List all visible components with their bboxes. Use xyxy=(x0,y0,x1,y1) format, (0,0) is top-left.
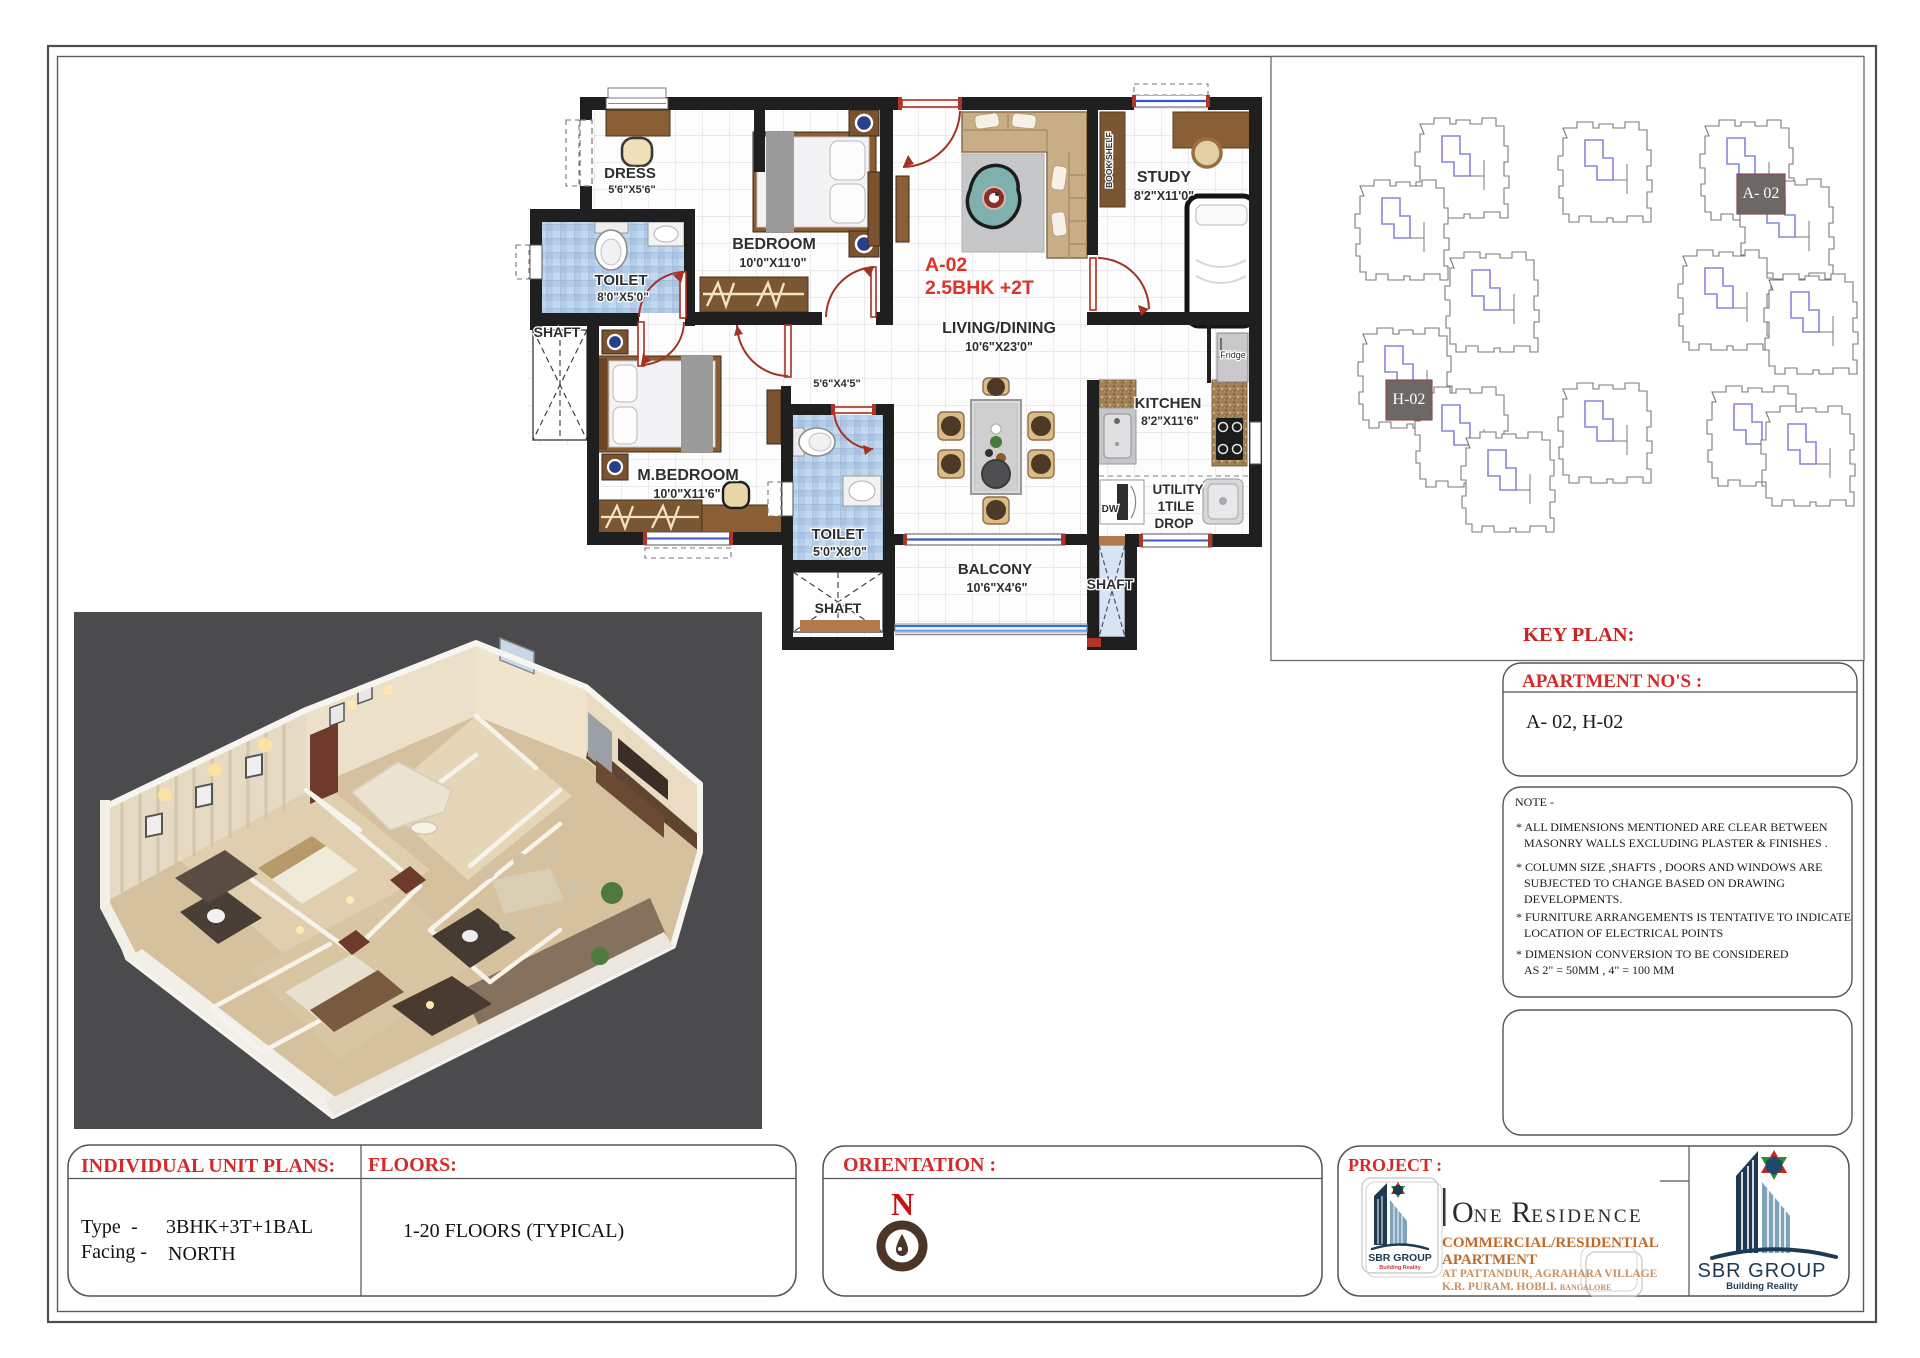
svg-text:* FURNITURE ARRANGEMENTS IS TE: * FURNITURE ARRANGEMENTS IS TENTATIVE TO… xyxy=(1516,910,1851,924)
svg-text:INDIVIDUAL UNIT PLANS:: INDIVIDUAL UNIT PLANS: xyxy=(81,1155,335,1177)
svg-text:UTILITY: UTILITY xyxy=(1153,482,1204,497)
svg-text:DEVELOPMENTS.: DEVELOPMENTS. xyxy=(1524,892,1622,906)
svg-text:NOTE -: NOTE - xyxy=(1515,795,1554,809)
svg-text:APARTMENT: APARTMENT xyxy=(1442,1252,1537,1268)
svg-text:N: N xyxy=(891,1186,914,1222)
svg-text:MASONRY WALLS EXCLUDING PLASTE: MASONRY WALLS EXCLUDING PLASTER & FINISH… xyxy=(1524,836,1828,850)
svg-text:2.5BHK +2T: 2.5BHK +2T xyxy=(925,277,1034,299)
svg-text:8'2"X11'6": 8'2"X11'6" xyxy=(1141,414,1199,428)
svg-text:SHAFT: SHAFT xyxy=(1087,576,1134,592)
svg-text:A- 02, H-02: A- 02, H-02 xyxy=(1526,711,1623,733)
svg-text:SHAFT: SHAFT xyxy=(534,324,581,340)
svg-text:TOILET: TOILET xyxy=(594,272,647,289)
svg-text:LIVING/DINING: LIVING/DINING xyxy=(942,320,1056,337)
svg-text:DROP: DROP xyxy=(1154,516,1193,531)
svg-text:1TILE: 1TILE xyxy=(1158,499,1195,514)
svg-text:Type: Type xyxy=(81,1216,121,1238)
svg-text:A-02: A-02 xyxy=(925,254,967,276)
svg-text:SBR GROUP: SBR GROUP xyxy=(1697,1260,1826,1282)
svg-text:PROJECT :: PROJECT : xyxy=(1348,1155,1442,1175)
svg-text:BEDROOM: BEDROOM xyxy=(732,236,816,253)
svg-text:8'0"X5'0": 8'0"X5'0" xyxy=(597,290,649,304)
svg-text:DW: DW xyxy=(1102,504,1119,515)
svg-text:LOCATION OF ELECTRICAL POINTS: LOCATION OF ELECTRICAL POINTS xyxy=(1524,926,1723,940)
svg-text:FLOORS:: FLOORS: xyxy=(368,1154,457,1176)
svg-text:5'6"X4'5": 5'6"X4'5" xyxy=(813,378,860,390)
svg-text:* DIMENSION CONVERSION TO BE C: * DIMENSION CONVERSION TO BE CONSIDERED xyxy=(1516,947,1789,961)
svg-text:3BHK+3T+1BAL: 3BHK+3T+1BAL xyxy=(166,1216,313,1238)
svg-text:Facing -: Facing - xyxy=(81,1241,147,1263)
svg-text:AT PATTANDUR, AGRAHARA VILLAGE: AT PATTANDUR, AGRAHARA VILLAGE xyxy=(1442,1268,1658,1280)
svg-text:NORTH: NORTH xyxy=(168,1243,236,1265)
svg-text:-: - xyxy=(131,1216,138,1238)
svg-text:H-02: H-02 xyxy=(1393,391,1426,408)
svg-text:KITCHEN: KITCHEN xyxy=(1135,395,1202,412)
svg-text:Building Reality: Building Reality xyxy=(1726,1281,1799,1292)
svg-text:* ALL DIMENSIONS MENTIONED ARE: * ALL DIMENSIONS MENTIONED ARE CLEAR BET… xyxy=(1516,820,1828,834)
svg-text:* COLUMN SIZE ,SHAFTS , DOORS: * COLUMN SIZE ,SHAFTS , DOORS AND WINDOW… xyxy=(1516,860,1822,874)
svg-text:10'6"X4'6": 10'6"X4'6" xyxy=(967,581,1028,595)
svg-text:1-20 FLOORS (TYPICAL): 1-20 FLOORS (TYPICAL) xyxy=(403,1220,624,1242)
svg-text:COMMERCIAL/RESIDENTIAL: COMMERCIAL/RESIDENTIAL xyxy=(1442,1235,1659,1251)
svg-text:KEY PLAN:: KEY PLAN: xyxy=(1523,624,1634,646)
svg-text:AS 2" = 50MM , 4" = 100 MM: AS 2" = 50MM , 4" = 100 MM xyxy=(1524,963,1675,977)
svg-text:APARTMENT NO'S :: APARTMENT NO'S : xyxy=(1522,671,1702,692)
svg-text:8'2"X11'0": 8'2"X11'0" xyxy=(1134,189,1194,203)
svg-text:5'0"X8'0": 5'0"X8'0" xyxy=(813,545,867,559)
svg-text:Building Reality: Building Reality xyxy=(1379,1265,1422,1271)
svg-text:ORIENTATION :: ORIENTATION : xyxy=(843,1154,996,1176)
svg-text:SBR GROUP: SBR GROUP xyxy=(1368,1252,1432,1264)
svg-text:10'0"X11'6": 10'0"X11'6" xyxy=(653,487,720,501)
svg-text:A- 02: A- 02 xyxy=(1743,185,1780,202)
svg-text:5'6"X5'6": 5'6"X5'6" xyxy=(608,184,655,196)
svg-text:SUBJECTED TO CHANGE BASED ON: SUBJECTED TO CHANGE BASED ON DRAWING xyxy=(1524,876,1785,890)
svg-text:M.BEDROOM: M.BEDROOM xyxy=(637,467,738,484)
svg-text:TOILET: TOILET xyxy=(811,526,864,543)
svg-text:K.R. PURAM. HOBLI. BANGALORE: K.R. PURAM. HOBLI. BANGALORE xyxy=(1442,1281,1611,1293)
svg-text:10'6"X23'0": 10'6"X23'0" xyxy=(965,340,1033,354)
svg-text:SHAFT: SHAFT xyxy=(815,600,862,616)
svg-text:STUDY: STUDY xyxy=(1137,169,1192,186)
svg-text:BALCONY: BALCONY xyxy=(958,561,1032,578)
svg-text:Fridge: Fridge xyxy=(1220,350,1246,360)
svg-text:BOOK SHELF: BOOK SHELF xyxy=(1104,132,1114,188)
svg-text:DRESS: DRESS xyxy=(604,165,656,182)
svg-text:10'0"X11'0": 10'0"X11'0" xyxy=(739,256,806,270)
